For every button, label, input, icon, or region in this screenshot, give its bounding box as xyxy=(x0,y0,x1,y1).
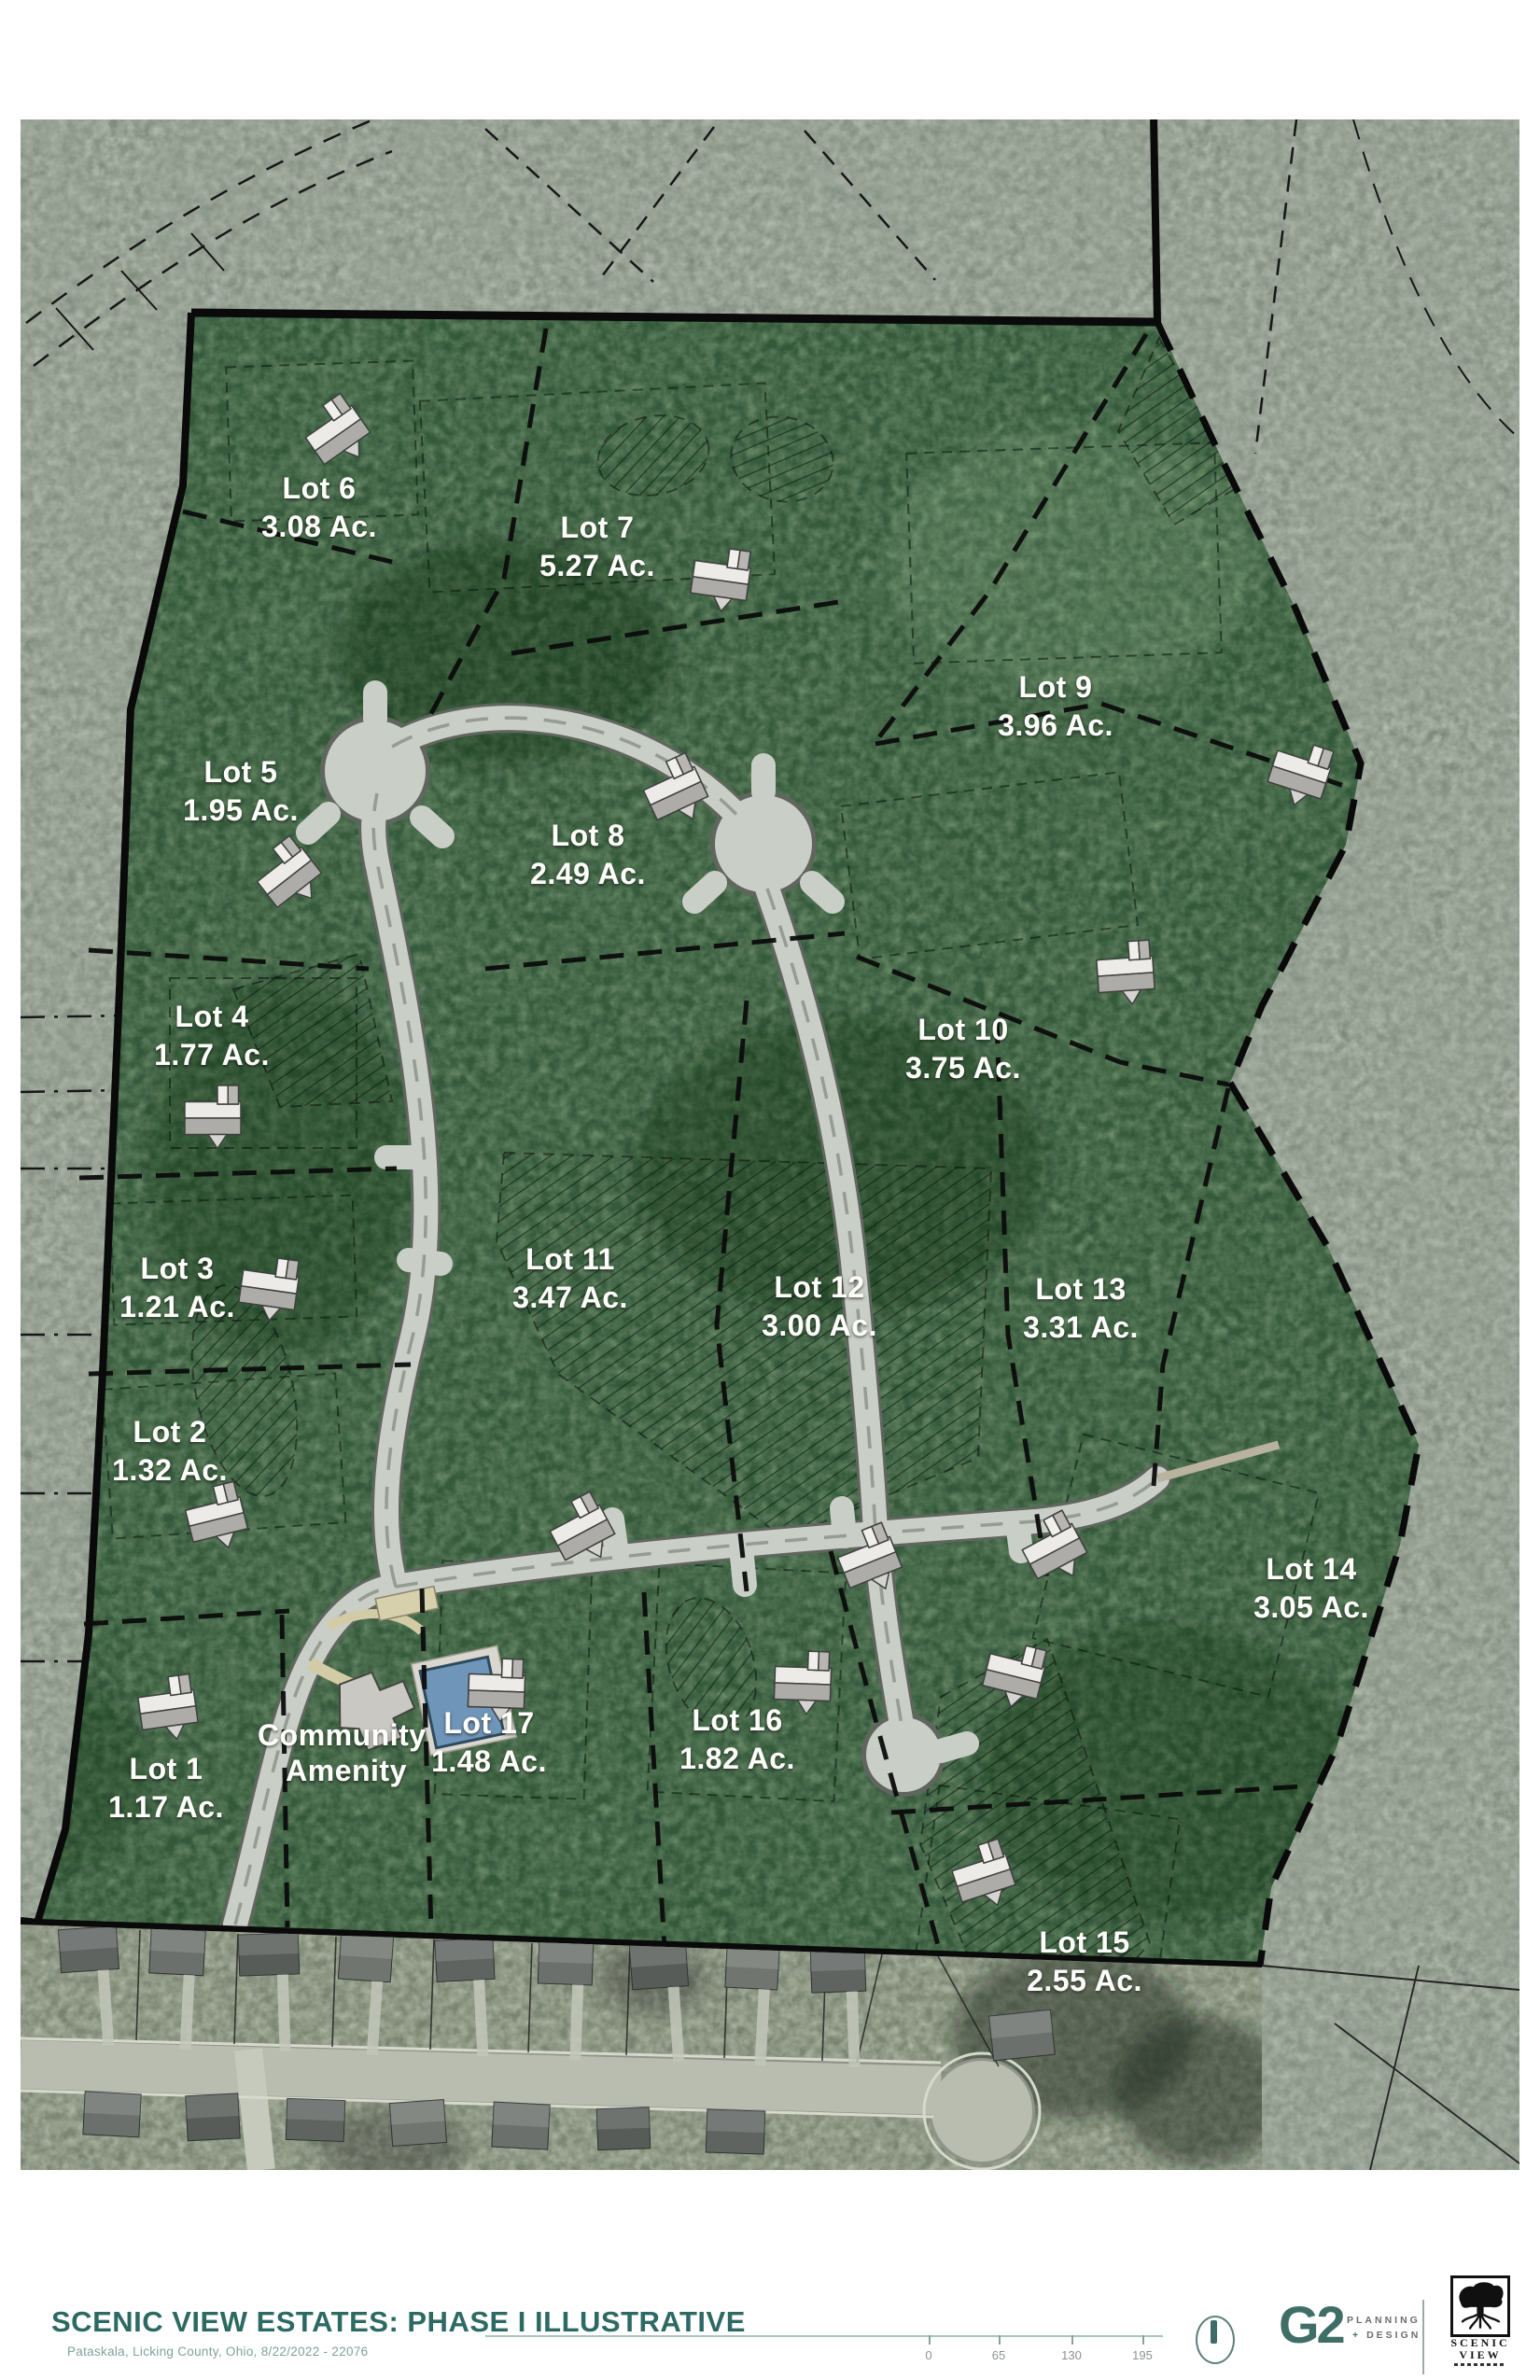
site-plan-map: Lot 11.17 Ac.Lot 21.32 Ac.Lot 31.21 Ac.L… xyxy=(0,0,1540,2380)
existing-house xyxy=(706,2109,765,2154)
scale-label: 130 xyxy=(1053,2348,1090,2362)
existing-house xyxy=(596,2107,651,2150)
existing-cul-de-sac xyxy=(931,2061,1032,2162)
scale-tick xyxy=(999,2335,1001,2345)
scale-label: 65 xyxy=(980,2348,1017,2362)
scale-label: 0 xyxy=(910,2348,947,2362)
title-rule xyxy=(485,2335,1163,2337)
logo-divider xyxy=(1422,2300,1424,2374)
scenic-view-logo-text: VIEW xyxy=(1442,2349,1519,2361)
scenic-view-logo: SCENIC VIEW xyxy=(1442,2275,1519,2366)
existing-neighborhood xyxy=(21,1923,1283,2184)
g2-logo-text: + DESIGN xyxy=(1352,2330,1421,2341)
existing-house xyxy=(186,2093,240,2141)
scale-tick xyxy=(929,2335,931,2345)
scenic-view-tagline xyxy=(1454,2363,1506,2366)
g2-logo: G2 xyxy=(1279,2294,1343,2355)
existing-house xyxy=(286,2098,344,2141)
existing-house xyxy=(389,2100,446,2147)
existing-house xyxy=(989,2009,1056,2061)
tree-icon xyxy=(1453,2278,1507,2334)
scale-label: 195 xyxy=(1124,2348,1161,2362)
existing-house xyxy=(492,2102,550,2149)
page-subtitle: Pataskala, Licking County, Ohio, 8/22/20… xyxy=(67,2345,368,2359)
scale-tick xyxy=(1142,2335,1144,2345)
page-title: SCENIC VIEW ESTATES: PHASE I ILLUSTRATIV… xyxy=(51,2305,746,2339)
scenic-view-logo-box xyxy=(1450,2275,1510,2337)
existing-street xyxy=(21,2065,941,2091)
north-arrow-needle xyxy=(1211,2320,1217,2344)
g2-logo-text: PLANNING xyxy=(1347,2315,1421,2326)
scale-tick xyxy=(1071,2335,1073,2345)
existing-house xyxy=(83,2092,141,2137)
illustrative-site-plan-page: Lot 11.17 Ac.Lot 21.32 Ac.Lot 31.21 Ac.L… xyxy=(0,0,1540,2380)
